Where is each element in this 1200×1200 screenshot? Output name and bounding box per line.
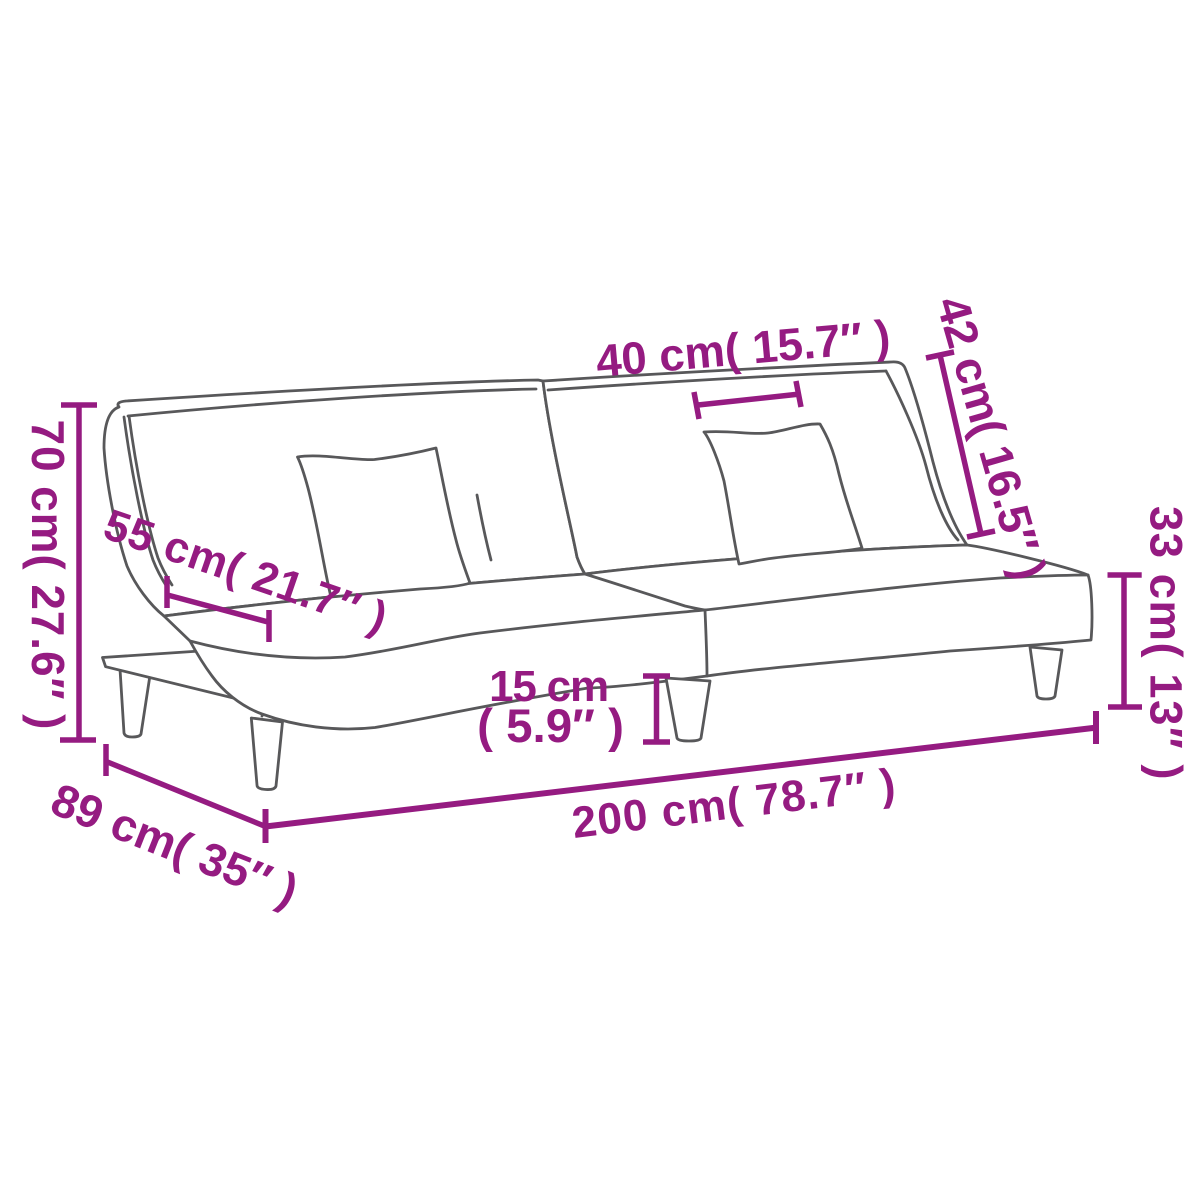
svg-text:( 5.9″ ): ( 5.9″ ) xyxy=(477,700,624,753)
svg-text:33 cm( 13″ ): 33 cm( 13″ ) xyxy=(1141,506,1192,781)
svg-text:70 cm( 27.6″ ): 70 cm( 27.6″ ) xyxy=(22,420,74,731)
svg-text:89 cm( 35″ ): 89 cm( 35″ ) xyxy=(44,773,305,917)
